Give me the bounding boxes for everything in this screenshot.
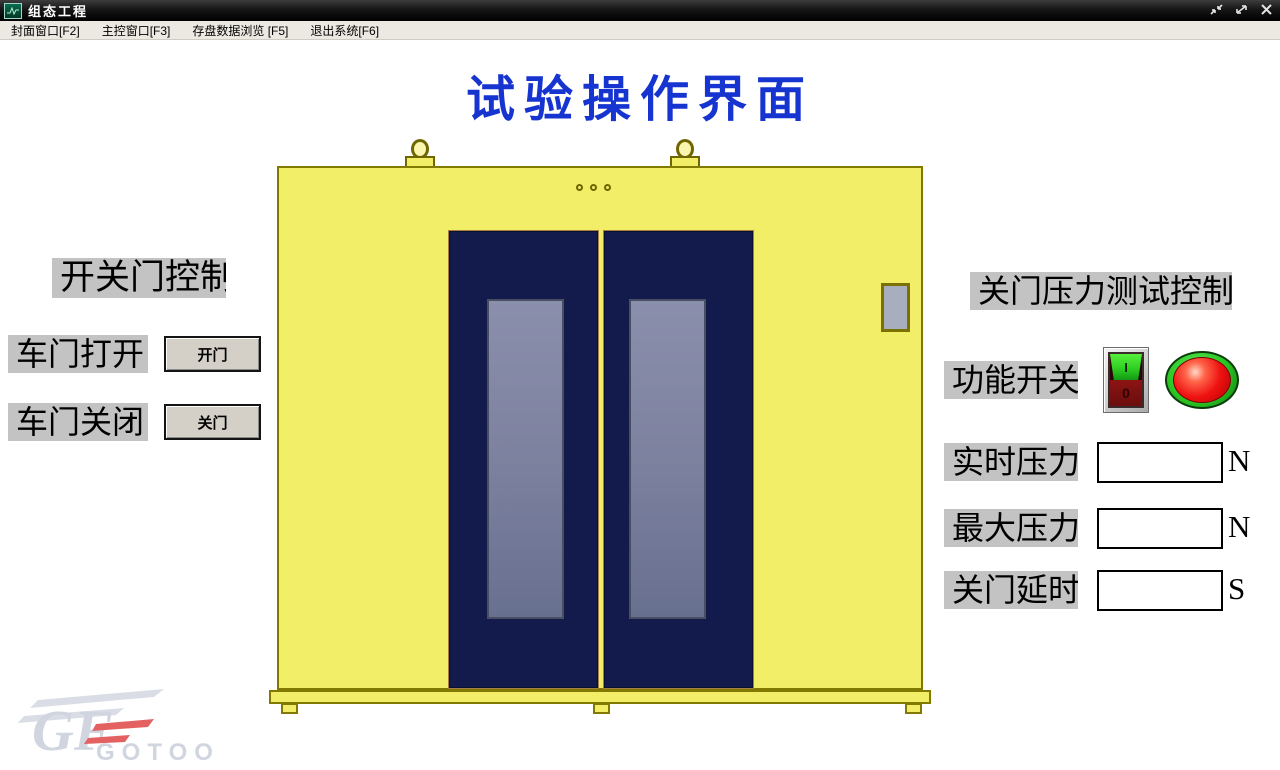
lamp-red-core xyxy=(1173,357,1231,403)
menu-bar: 封面窗口[F2] 主控窗口[F3] 存盘数据浏览 [F5] 退出系统[F6] xyxy=(0,21,1280,40)
menu-item-exit-system[interactable]: 退出系统[F6] xyxy=(299,22,390,39)
chamber-foot xyxy=(281,703,298,714)
chamber-foot xyxy=(593,703,610,714)
door-window-right xyxy=(629,299,706,619)
door-open-label: 车门打开 xyxy=(8,335,148,373)
realtime-pressure-label: 实时压力 xyxy=(944,443,1078,481)
menu-item-cover-window[interactable]: 封面窗口[F2] xyxy=(0,22,91,39)
open-door-button[interactable]: 开门 xyxy=(164,336,261,372)
vent-hole xyxy=(576,184,583,191)
page-title: 试验操作界面 xyxy=(466,60,814,131)
vent-hole xyxy=(604,184,611,191)
pressure-test-group-label: 关门压力测试控制 xyxy=(970,272,1232,310)
max-pressure-unit: N xyxy=(1228,509,1250,545)
status-indicator-lamp xyxy=(1165,351,1239,409)
restore-icon[interactable] xyxy=(1209,3,1224,16)
rocker-switch-frame: I 0 xyxy=(1108,352,1144,408)
app-logo-icon xyxy=(4,3,22,19)
menu-item-data-browse[interactable]: 存盘数据浏览 [F5] xyxy=(181,22,299,39)
window-title: 组态工程 xyxy=(28,1,88,20)
close-icon[interactable] xyxy=(1259,3,1274,16)
rocker-off-position: 0 xyxy=(1110,380,1142,406)
chamber-base-rail xyxy=(269,690,931,704)
maximize-icon[interactable] xyxy=(1234,3,1249,16)
close-door-button[interactable]: 关门 xyxy=(164,404,261,440)
function-switch-label: 功能开关 xyxy=(944,361,1078,399)
gotoo-watermark-logo: GF GOTOO xyxy=(4,686,214,766)
logo-text: GOTOO xyxy=(96,739,214,766)
door-close-delay-input[interactable] xyxy=(1097,570,1223,611)
door-close-label: 车门关闭 xyxy=(8,403,148,441)
door-window-left xyxy=(487,299,564,619)
max-pressure-label: 最大压力 xyxy=(944,509,1078,547)
rocker-on-position: I xyxy=(1110,354,1142,380)
realtime-pressure-unit: N xyxy=(1228,443,1250,479)
vent-hole xyxy=(590,184,597,191)
window-titlebar[interactable]: 组态工程 xyxy=(0,0,1280,21)
door-close-delay-label: 关门延时 xyxy=(944,571,1078,609)
door-close-delay-unit: S xyxy=(1228,571,1245,607)
chamber-body xyxy=(277,166,923,690)
hmi-window: 组态工程 封面窗口[F2] 主控窗口[F3] 存盘数据浏览 [F5] xyxy=(0,0,1280,770)
door-control-group-label: 开关门控制 xyxy=(52,258,226,298)
realtime-pressure-input[interactable] xyxy=(1097,442,1223,483)
function-rocker-switch[interactable]: I 0 xyxy=(1103,347,1149,413)
chamber-foot xyxy=(905,703,922,714)
menu-item-main-window[interactable]: 主控窗口[F3] xyxy=(91,22,182,39)
side-inspection-panel xyxy=(881,283,910,332)
max-pressure-input[interactable] xyxy=(1097,508,1223,549)
